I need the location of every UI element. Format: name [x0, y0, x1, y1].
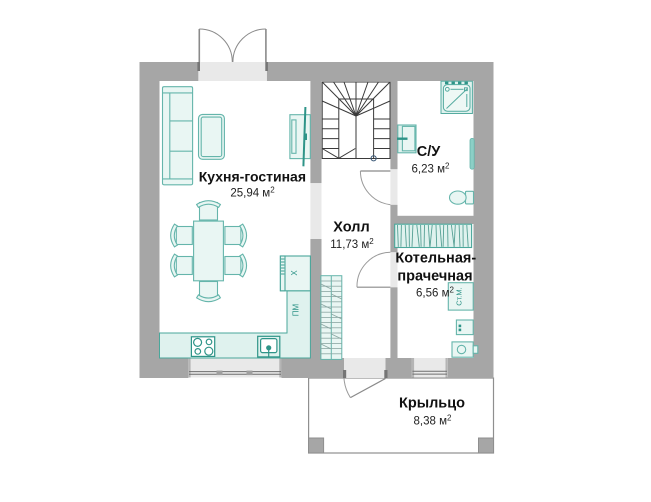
- svg-text:ПМ: ПМ: [292, 303, 301, 316]
- svg-text:Ст.М.: Ст.М.: [455, 287, 464, 305]
- svg-text:6,23 м2: 6,23 м2: [412, 162, 450, 176]
- svg-text:Х: Х: [290, 270, 299, 276]
- svg-text:Холл: Холл: [333, 220, 369, 236]
- svg-text:С/У: С/У: [417, 144, 442, 160]
- svg-text:6,56 м2: 6,56 м2: [416, 286, 454, 300]
- svg-text:8,38 м2: 8,38 м2: [414, 414, 452, 428]
- svg-text:Кухня-гостиная: Кухня-гостиная: [199, 169, 306, 185]
- svg-text:прачечная: прачечная: [397, 269, 472, 285]
- svg-text:11,73 м2: 11,73 м2: [330, 237, 374, 251]
- svg-text:25,94 м2: 25,94 м2: [230, 186, 275, 200]
- svg-text:Котельная-: Котельная-: [395, 251, 476, 267]
- svg-text:Крыльцо: Крыльцо: [399, 396, 465, 412]
